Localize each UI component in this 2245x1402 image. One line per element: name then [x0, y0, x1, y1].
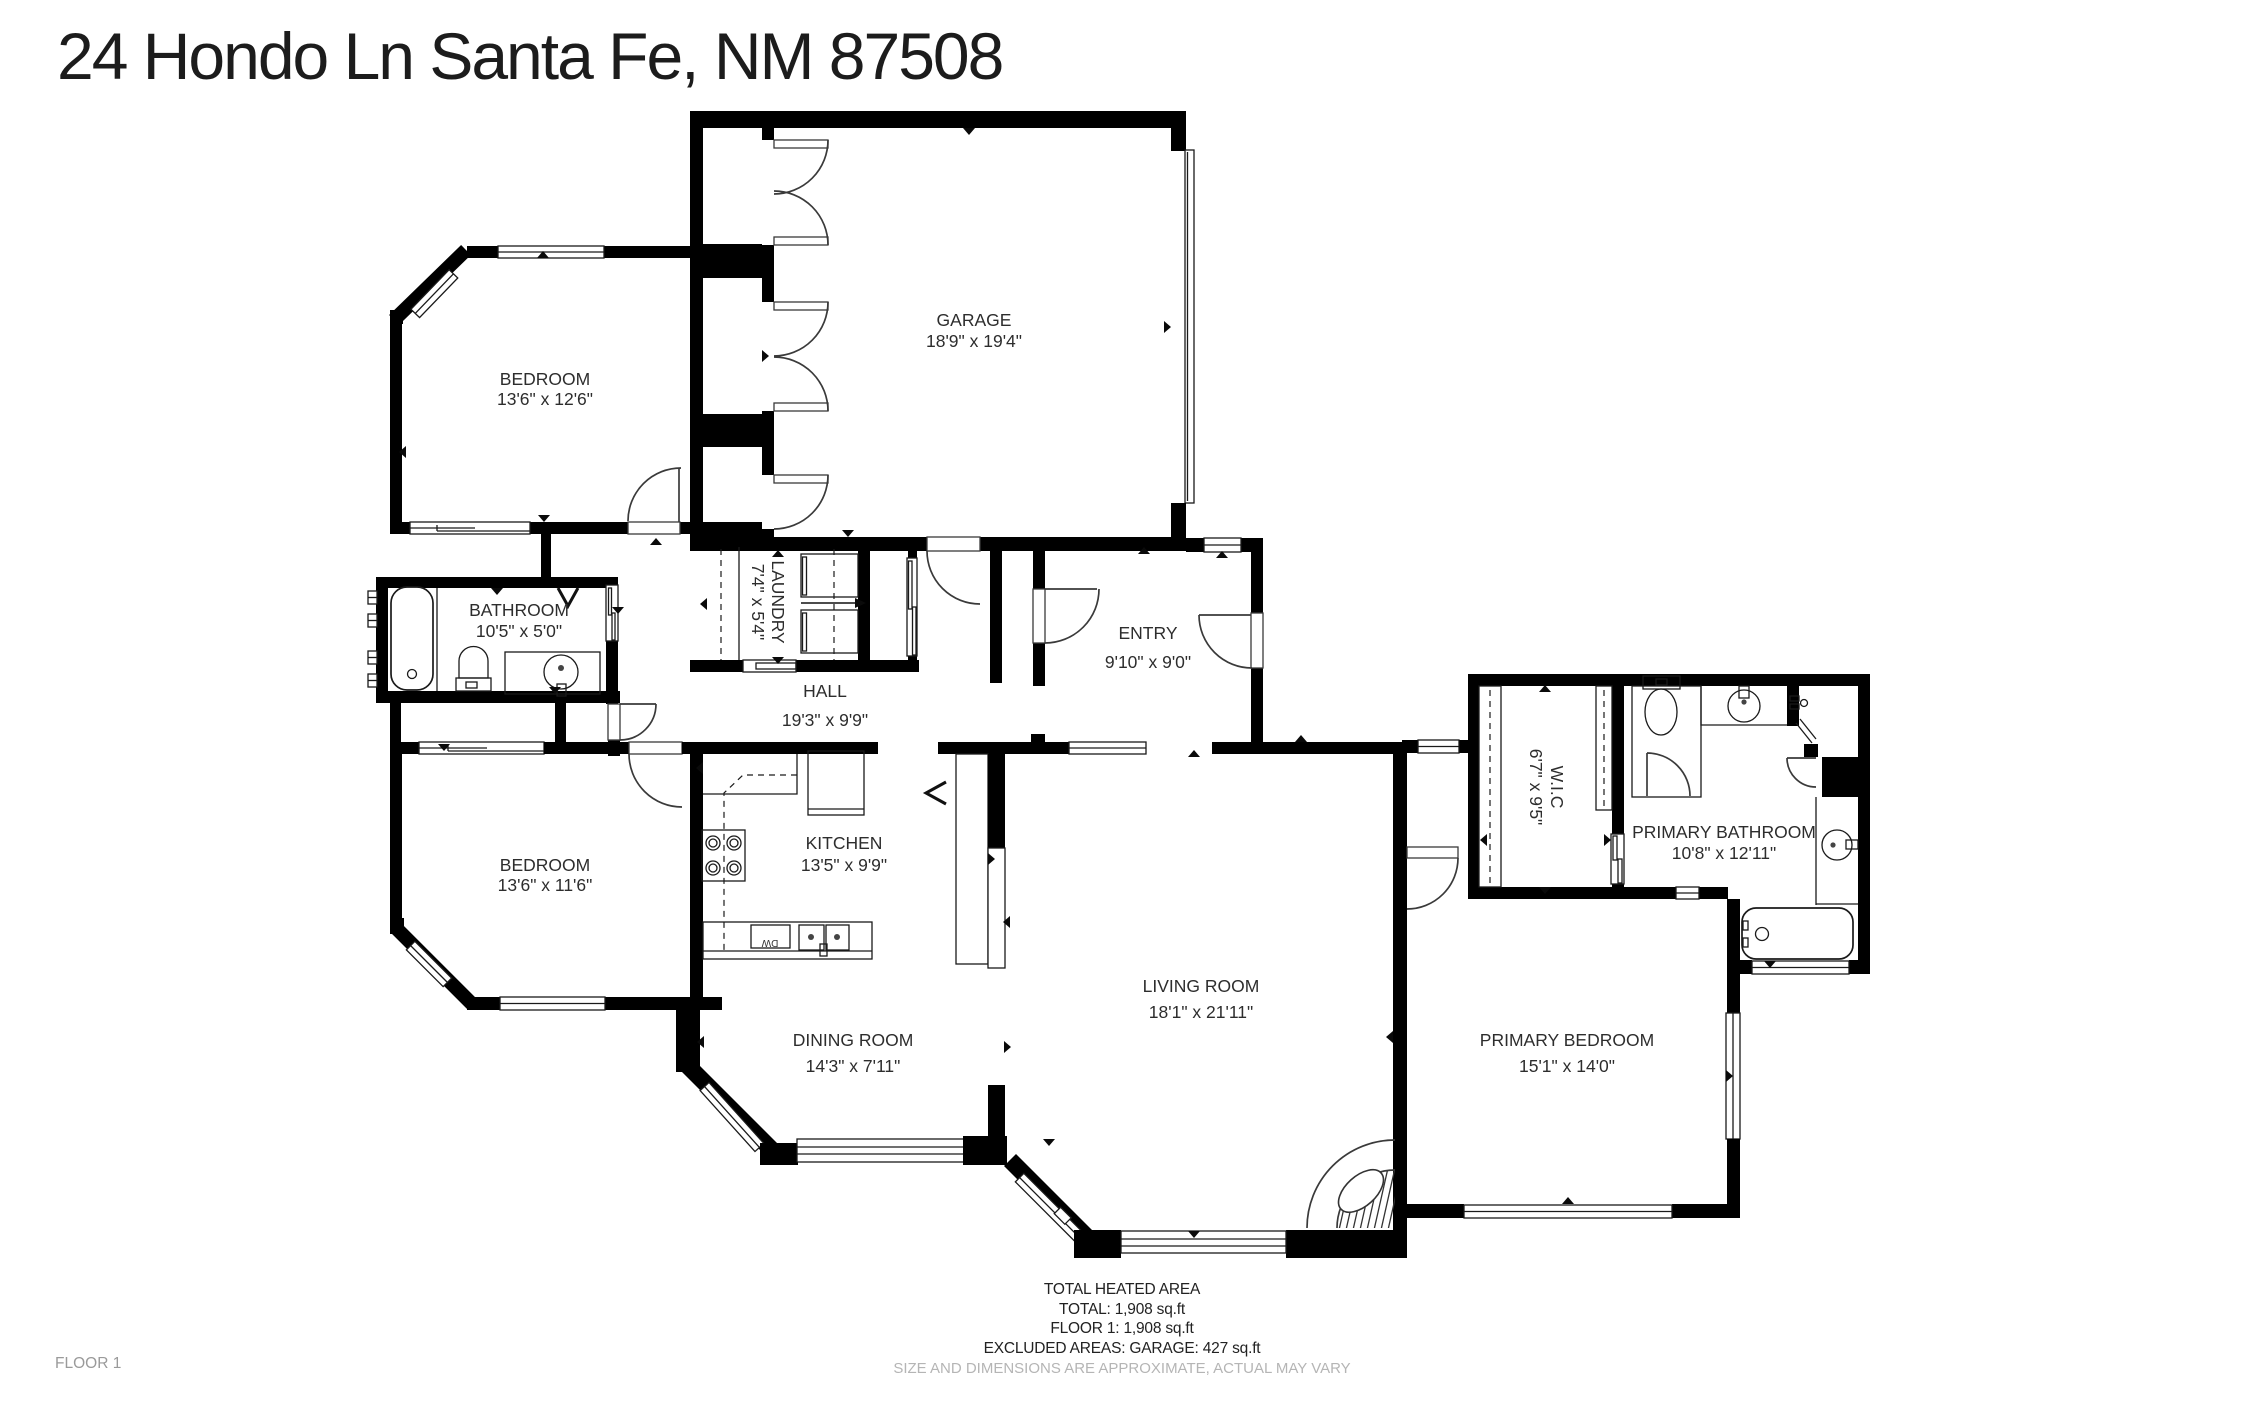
svg-text:FLOOR 1: 1,908 sq.ft: FLOOR 1: 1,908 sq.ft: [1050, 1320, 1194, 1337]
svg-text:HALL: HALL: [803, 681, 847, 701]
svg-text:19'3" x 9'9": 19'3" x 9'9": [782, 710, 868, 730]
svg-text:EXCLUDED AREAS: GARAGE: 427 sq: EXCLUDED AREAS: GARAGE: 427 sq.ft: [984, 1340, 1262, 1357]
svg-text:14'3" x 7'11": 14'3" x 7'11": [806, 1056, 901, 1076]
svg-text:DINING ROOM: DINING ROOM: [793, 1030, 914, 1050]
svg-text:10'8" x 12'11": 10'8" x 12'11": [1672, 843, 1776, 863]
svg-text:13'5" x 9'9": 13'5" x 9'9": [801, 855, 887, 875]
svg-text:SIZE AND DIMENSIONS ARE APPROX: SIZE AND DIMENSIONS ARE APPROXIMATE, ACT…: [893, 1360, 1350, 1377]
svg-text:ENTRY: ENTRY: [1119, 623, 1178, 643]
svg-text:TOTAL: 1,908 sq.ft: TOTAL: 1,908 sq.ft: [1059, 1301, 1186, 1318]
svg-text:DW: DW: [761, 937, 778, 948]
svg-text:15'1" x 14'0": 15'1" x 14'0": [1519, 1056, 1615, 1076]
svg-text:BEDROOM: BEDROOM: [500, 855, 590, 875]
svg-text:13'6" x 12'6": 13'6" x 12'6": [497, 389, 593, 409]
svg-text:LIVING ROOM: LIVING ROOM: [1143, 976, 1260, 996]
svg-text:18'9" x 19'4": 18'9" x 19'4": [926, 331, 1022, 351]
svg-text:TOTAL HEATED AREA: TOTAL HEATED AREA: [1044, 1281, 1201, 1298]
svg-text:6'7" x 9'5": 6'7" x 9'5": [1526, 749, 1546, 826]
svg-text:9'10" x 9'0": 9'10" x 9'0": [1105, 652, 1191, 672]
svg-text:BATHROOM: BATHROOM: [469, 600, 569, 620]
svg-text:18'1" x 21'11": 18'1" x 21'11": [1149, 1002, 1253, 1022]
svg-text:24 Hondo Ln Santa Fe, NM 87508: 24 Hondo Ln Santa Fe, NM 87508: [57, 19, 1002, 93]
svg-text:PRIMARY BEDROOM: PRIMARY BEDROOM: [1480, 1030, 1654, 1050]
svg-text:BEDROOM: BEDROOM: [500, 369, 590, 389]
svg-text:GARAGE: GARAGE: [937, 310, 1012, 330]
svg-text:13'6" x 11'6": 13'6" x 11'6": [498, 875, 593, 895]
svg-text:W.I.C: W.I.C: [1547, 766, 1567, 809]
svg-text:10'5" x 5'0": 10'5" x 5'0": [476, 621, 562, 641]
svg-text:LAUNDRY: LAUNDRY: [768, 560, 788, 644]
svg-text:PRIMARY BATHROOM: PRIMARY BATHROOM: [1632, 822, 1816, 842]
svg-text:KITCHEN: KITCHEN: [806, 833, 883, 853]
svg-text:7'4" x 5'4": 7'4" x 5'4": [748, 564, 768, 641]
svg-text:FLOOR 1: FLOOR 1: [55, 1355, 121, 1372]
